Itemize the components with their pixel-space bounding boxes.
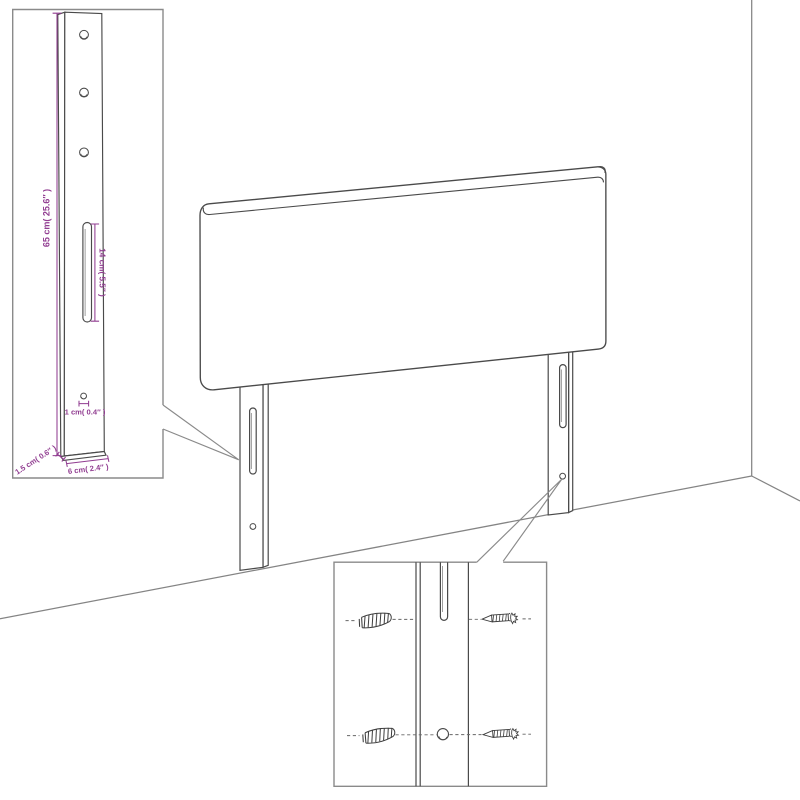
headboard-leg-left bbox=[240, 380, 268, 571]
detail-inset-box bbox=[334, 479, 562, 786]
headboard-outline bbox=[200, 167, 606, 390]
screw-icon-top bbox=[482, 613, 518, 626]
left-inset-post bbox=[58, 12, 106, 460]
screw-icon-bottom bbox=[483, 728, 519, 741]
detail-inset-callout-lines bbox=[477, 479, 562, 562]
alignment-dash-lines bbox=[346, 619, 532, 736]
floor-edge-left bbox=[0, 476, 752, 619]
dim-label-width: 6 cm( 2.4″ ) bbox=[67, 462, 109, 476]
headboard-leg-right bbox=[548, 350, 573, 515]
wall-anchor-icon-top bbox=[358, 611, 393, 629]
floor-edge-right bbox=[752, 476, 800, 501]
leg-right-slot bbox=[560, 365, 567, 428]
dim-label-slot-length: 14 cm( 5.5″ ) bbox=[98, 248, 107, 297]
detail-leg-closeup bbox=[416, 562, 468, 786]
assembly-diagram-page: 65 cm( 25.6″ ) 14 cm( 5.5″ ) 1 cm( 0.4″ … bbox=[0, 0, 800, 800]
wall-anchor-icon-bottom bbox=[361, 726, 396, 745]
post-slot bbox=[83, 223, 92, 323]
left-inset-callout-lines bbox=[163, 405, 239, 460]
assembly-diagram-canvas: 65 cm( 25.6″ ) 14 cm( 5.5″ ) 1 cm( 0.4″ … bbox=[0, 0, 800, 800]
dim-label-thickness: 1.5 cm( 0.6″ ) bbox=[13, 443, 58, 476]
headboard-panel bbox=[200, 167, 606, 390]
detail-hole bbox=[437, 729, 448, 740]
detail-slot bbox=[440, 562, 447, 620]
dim-label-height: 65 cm( 25.6″ ) bbox=[42, 189, 52, 247]
dim-label-hole: 1 cm( 0.4″ ) bbox=[65, 408, 106, 417]
leg-left-slot bbox=[250, 408, 257, 474]
